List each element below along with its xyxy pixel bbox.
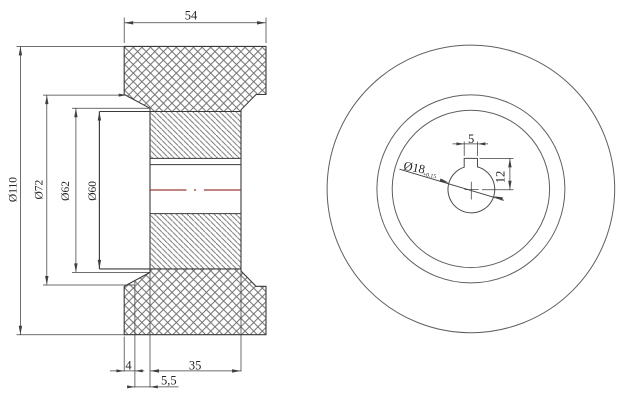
- svg-text:12: 12: [494, 171, 508, 184]
- svg-text:54: 54: [185, 9, 198, 23]
- svg-text:Ø110: Ø110: [8, 177, 20, 202]
- svg-text:Ø62: Ø62: [60, 181, 72, 201]
- svg-text:+0.15: +0.15: [422, 172, 436, 180]
- svg-text:Ø72: Ø72: [34, 179, 46, 199]
- svg-text:5: 5: [468, 132, 474, 146]
- svg-text:Ø60: Ø60: [87, 181, 99, 201]
- svg-text:5,5: 5,5: [161, 374, 177, 388]
- svg-text:35: 35: [189, 358, 202, 372]
- svg-text:4: 4: [125, 358, 132, 372]
